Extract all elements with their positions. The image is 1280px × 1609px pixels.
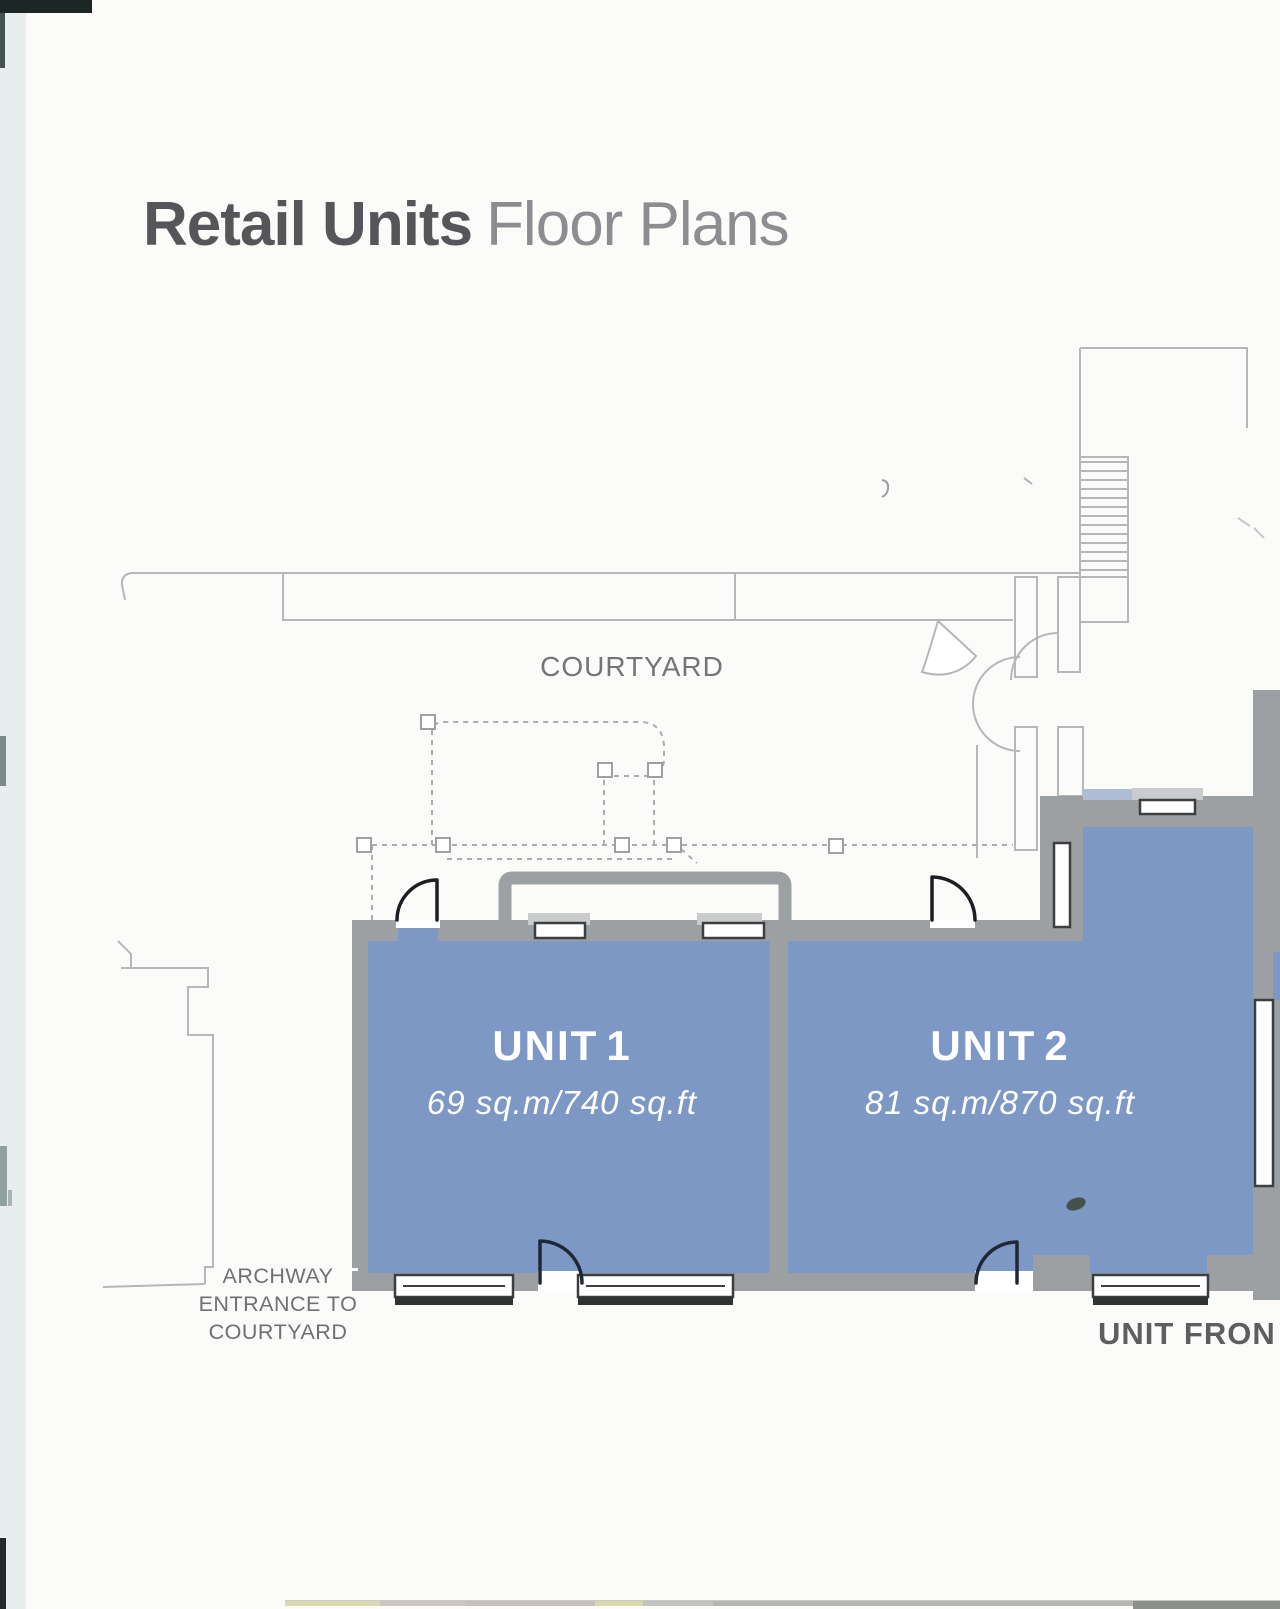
- page-title: Retail UnitsFloor Plans: [143, 190, 789, 260]
- courtyard-label: COURTYARD: [500, 651, 764, 683]
- party-wall-divider: [770, 920, 788, 1291]
- archway-line-3: COURTYARD: [148, 1318, 408, 1346]
- stair-landing: [1080, 577, 1128, 622]
- unit1-area: 69 sq.m/740 sq.ft: [392, 1084, 732, 1122]
- comma-artifact: [882, 480, 888, 497]
- page-title-secondary: Floor Plans: [486, 190, 789, 259]
- bottom-left-dark-strip: [0, 1538, 6, 1609]
- corridor-stub: [1015, 727, 1037, 850]
- adjacent-unit-sliver: [1273, 952, 1280, 1000]
- archway-entrance-label: ARCHWAY ENTRANCE TO COURTYARD: [148, 1262, 408, 1346]
- unit-frontage-label: UNIT FRON: [1098, 1316, 1276, 1352]
- archway-line-1: ARCHWAY: [148, 1262, 408, 1290]
- unit2-name: UNIT2: [830, 1022, 1170, 1070]
- door-swing-arc: [973, 657, 1020, 751]
- left-edge-smudge: [0, 736, 6, 786]
- unit1-left-wall: [352, 920, 368, 1268]
- unit1-label: UNIT1 69 sq.m/740 sq.ft: [392, 1022, 732, 1122]
- left-edge-dark-strip: [0, 13, 5, 68]
- dashed-canopy-outline: [432, 722, 664, 845]
- courtyard-window: [535, 923, 585, 938]
- unit2-rear-door: [932, 877, 975, 920]
- left-edge-smudge: [8, 1190, 12, 1206]
- scanned-floor-plan-page: Retail UnitsFloor Plans COURTYARD UNIT1 …: [0, 0, 1280, 1609]
- scan-edge-artifacts: [0, 0, 92, 1609]
- unit2-door-opening: [975, 1271, 1033, 1291]
- right-wall-window: [1255, 1000, 1273, 1186]
- door-swing-arc: [1011, 633, 1058, 680]
- left-boundary-outline: [103, 941, 213, 1287]
- left-scan-band: [0, 0, 26, 1609]
- shopfront-window-unit2: [1093, 1275, 1208, 1305]
- unit2-side-window: [1054, 843, 1070, 927]
- top-right-room-outline: [1080, 348, 1247, 622]
- faint-ticks: [1238, 518, 1264, 538]
- unit2-floor-extension: [1083, 827, 1253, 943]
- unit2-label: UNIT2 81 sq.m/870 sq.ft: [830, 1022, 1170, 1122]
- courtyard-window: [703, 923, 764, 938]
- staircase: [1080, 457, 1128, 622]
- door-leaf-wedge: [922, 621, 976, 675]
- unit1-rear-door: [397, 880, 437, 920]
- corridor-stub: [1015, 577, 1037, 677]
- unit2-number: 2: [1044, 1022, 1069, 1069]
- unit1-door-opening: [538, 1271, 582, 1291]
- window-sill: [1132, 788, 1203, 800]
- unit2-bottom-pier: [1033, 1255, 1090, 1289]
- left-edge-smudge: [0, 1146, 7, 1206]
- unit1-top-door-opening: [396, 920, 440, 928]
- corridor-stub: [1058, 727, 1083, 796]
- stair-treads: [1080, 462, 1128, 570]
- unit2-area: 81 sq.m/870 sq.ft: [830, 1084, 1170, 1122]
- unit2-prefix: UNIT: [930, 1022, 1036, 1069]
- top-left-dark-mark: [0, 0, 92, 13]
- unit2-bottom-pier: [1207, 1255, 1253, 1291]
- dashed-post-links: [604, 770, 654, 845]
- upper-wall-blue-strip: [1083, 789, 1133, 800]
- courtyard-dashed-structure: [357, 715, 1013, 921]
- archway-line-2: ENTRANCE TO: [148, 1290, 408, 1318]
- shopfront-window-unit1-b: [578, 1275, 733, 1305]
- shopfront-window-unit1-a: [395, 1275, 513, 1305]
- unit1-door-threshold: [398, 928, 438, 943]
- unit1-number: 1: [606, 1022, 631, 1069]
- bottom-scan-strip: [285, 1600, 1280, 1609]
- faint-tick: [1024, 478, 1032, 484]
- corridor-stub: [1058, 577, 1080, 672]
- unit1-name: UNIT1: [392, 1022, 732, 1070]
- post-markers: [357, 715, 843, 853]
- unit1-prefix: UNIT: [492, 1022, 598, 1069]
- dashed-slash: [681, 849, 697, 863]
- top-wall-line: [122, 573, 1080, 600]
- page-title-primary: Retail Units: [143, 190, 472, 259]
- unit2-top-door-opening: [930, 920, 975, 928]
- top-wall-band: [283, 573, 1013, 620]
- unit2-upper-window: [1140, 800, 1195, 814]
